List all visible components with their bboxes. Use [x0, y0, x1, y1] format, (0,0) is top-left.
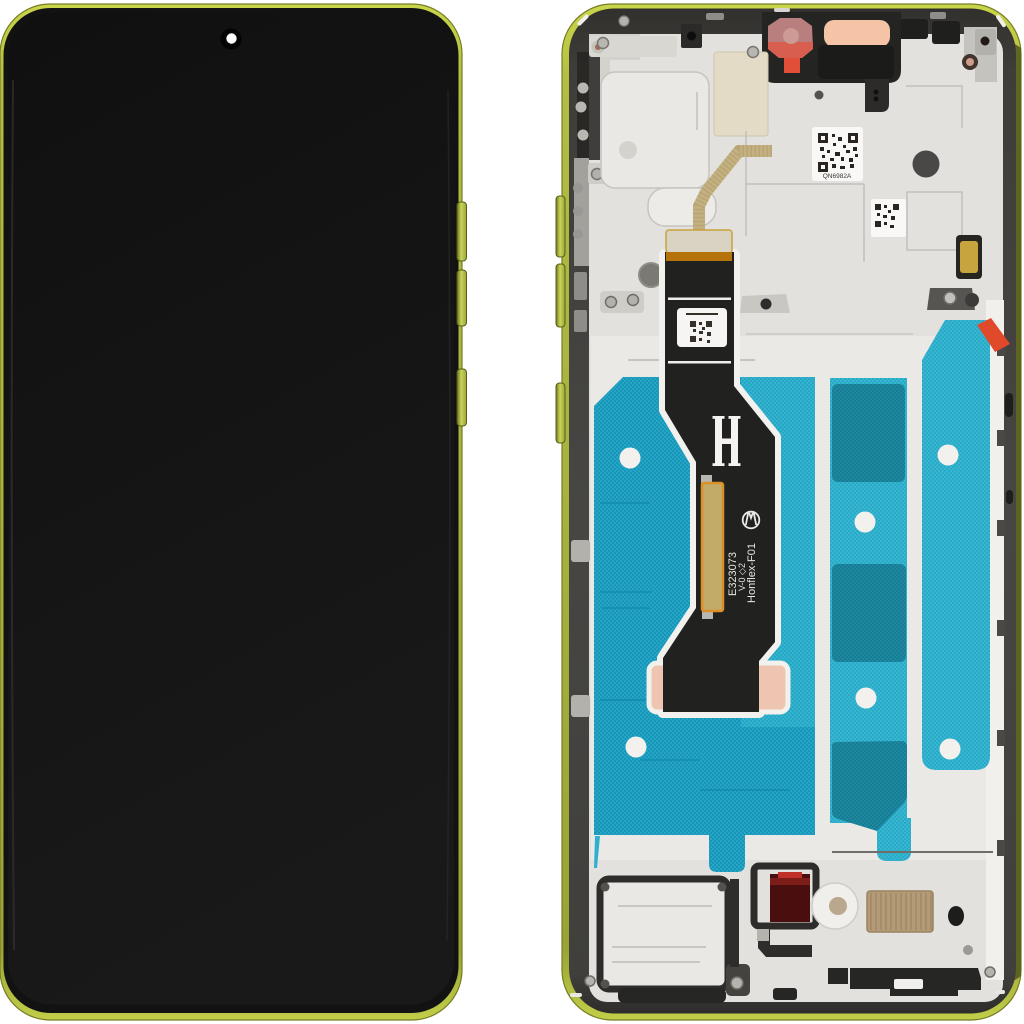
- svg-text:Honflex-F01: Honflex-F01: [746, 543, 758, 603]
- svg-text:QN6982A: QN6982A: [823, 173, 852, 180]
